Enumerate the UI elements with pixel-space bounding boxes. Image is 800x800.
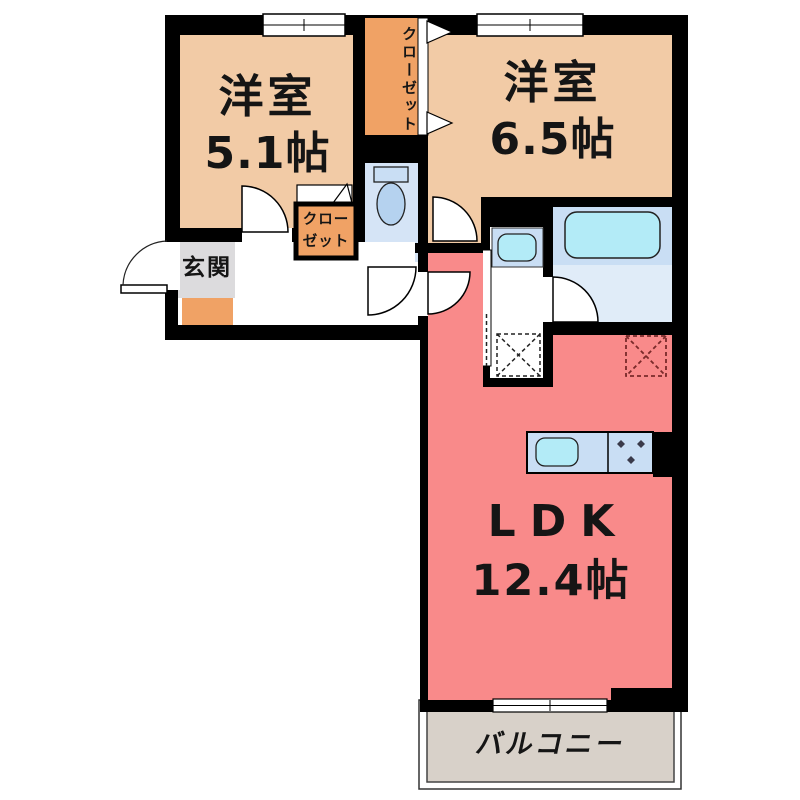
window-room-6-5	[477, 14, 583, 36]
kitchen-sink-icon	[536, 438, 578, 466]
wall-ldk-bottom-chunk	[611, 688, 677, 712]
ldk-size: 12.4帖	[428, 558, 674, 605]
window-room-5-1	[263, 14, 345, 36]
room-5-1-name: 洋室	[180, 72, 355, 122]
wall-sill-room-6-5	[415, 243, 483, 253]
closet-tall-label: クローゼット	[368, 26, 416, 130]
washroom-sliding-door	[482, 250, 491, 366]
room-6-5-name: 洋室	[430, 58, 675, 108]
entrance-door-swing-arc-icon	[123, 241, 167, 285]
washbasin-icon	[498, 234, 536, 261]
bath-door-opening	[543, 277, 553, 322]
entrance-step	[182, 298, 233, 325]
floor-plan: 洋室 5.1帖 洋室 6.5帖 クローゼット クロー ゼット 玄関 LDK 12…	[0, 0, 800, 800]
closet-small-label-line2: ゼット	[303, 234, 350, 250]
ldk-door-opening	[415, 272, 428, 316]
wall-kitchen-chunk	[653, 432, 672, 477]
entrance-label: 玄関	[178, 256, 236, 281]
balcony-label: バルコニー	[425, 730, 677, 760]
closet-small-label-line1: クロー	[303, 212, 350, 228]
room-6-5-size: 6.5帖	[430, 116, 675, 164]
room-5-1-size: 5.1帖	[180, 130, 355, 178]
bathtub-icon	[565, 212, 660, 258]
sliding-window-balcony	[493, 699, 607, 712]
entrance-door-leaf	[121, 285, 167, 293]
toilet-icon	[374, 167, 408, 182]
ldk-name: LDK	[428, 498, 674, 546]
toilet-bowl-icon	[377, 183, 405, 225]
